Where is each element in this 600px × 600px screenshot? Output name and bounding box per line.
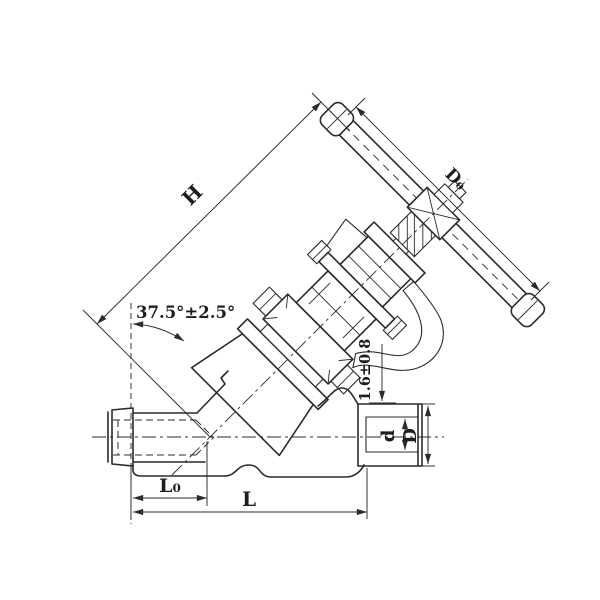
label-socket-gap: 1.6±0.8 — [357, 339, 374, 402]
label-stem-angle: 37.5°±2.5° — [136, 303, 235, 322]
label-height: H — [177, 180, 207, 210]
drawing-canvas: H D₀ 37.5°±2.5° 1.6±0.8 d D L₀ — [0, 0, 600, 600]
label-center-to-face: L₀ — [159, 475, 181, 497]
label-face-to-face: L — [242, 487, 256, 511]
dim-gap: 1.6±0.8 — [357, 339, 396, 403]
label-end-outer-diameter: D — [400, 428, 421, 444]
label-bore-diameter: d — [378, 429, 399, 442]
valve-technical-drawing: H D₀ 37.5°±2.5° 1.6±0.8 d D L₀ — [0, 0, 600, 600]
